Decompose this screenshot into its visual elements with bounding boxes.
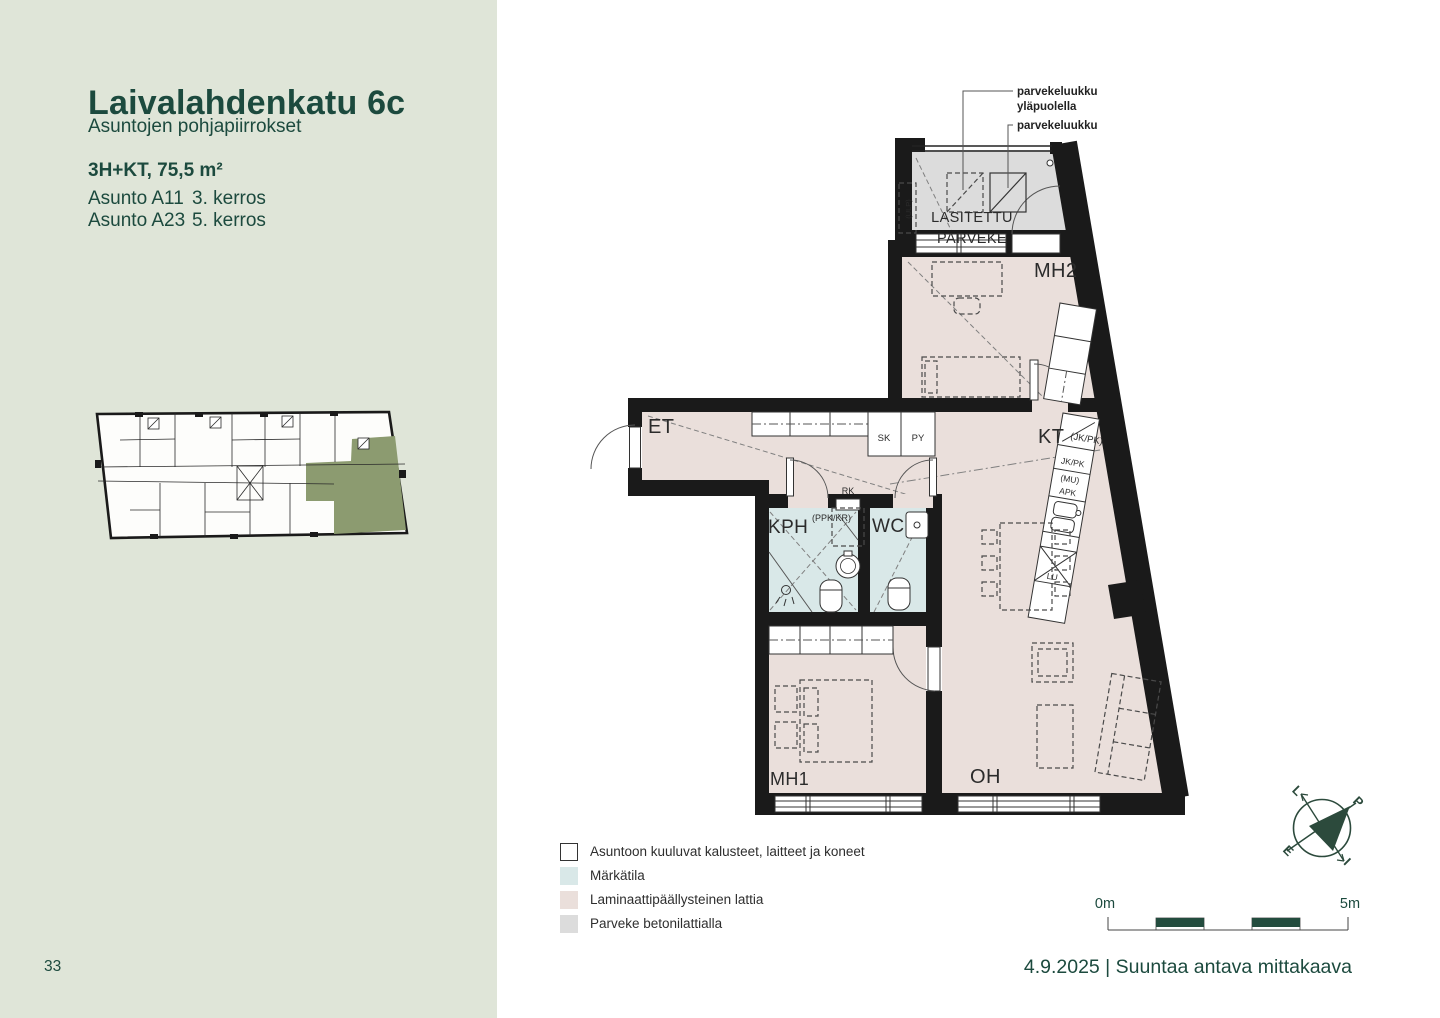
balcony-drain	[1047, 160, 1053, 166]
room-label-mh2: MH2	[1034, 260, 1077, 282]
room-label-mh1: MH1	[770, 769, 809, 789]
unit-row: Asunto A113. kerros	[88, 188, 266, 210]
laundry-label: (PPK/KR)	[812, 513, 851, 523]
legend-swatch-furniture	[560, 843, 578, 861]
page-subtitle: Asuntojen pohjapiirrokset	[88, 116, 301, 138]
room-label-kph: KPH	[768, 517, 808, 538]
annotation-hatch-above-1: parvekeluukku	[1017, 86, 1098, 98]
unit-name: Asunto A23	[88, 210, 192, 232]
brochure-page: { "page": { "page_number": "33", "footer…	[0, 0, 1440, 1018]
sidebar: Laivalahdenkatu 6c Asuntojen pohjapiirro…	[0, 0, 497, 1018]
scale-start-label: 0m	[1095, 896, 1115, 912]
legend-swatch-laminate	[560, 891, 578, 909]
page-number: 33	[44, 958, 61, 976]
room-label-kt: KT	[1038, 426, 1064, 448]
legend-label: Laminaattipäällysteinen lattia	[590, 892, 763, 907]
room-label-balcony-1: LASITETTU	[931, 210, 1013, 226]
legend-item: Parveke betonilattialla	[560, 914, 865, 933]
legend: Asuntoon kuuluvat kalusteet, laitteet ja…	[560, 842, 865, 933]
legend-label: Parveke betonilattialla	[590, 916, 722, 931]
closet-py-label: PY	[912, 433, 925, 444]
floor-plan: JK/PK (MU) APK LU	[570, 75, 1192, 820]
annotation-hatch-above-2: yläpuolella	[1017, 101, 1077, 113]
legend-label: Märkätila	[590, 868, 645, 883]
rk-label: RK	[842, 486, 855, 496]
room-label-oh: OH	[970, 766, 1001, 788]
room-label-wc: WC	[872, 516, 904, 537]
legend-item: Märkätila	[560, 866, 865, 885]
legend-item: Laminaattipäällysteinen lattia	[560, 890, 865, 909]
unit-floor: 3. kerros	[192, 188, 266, 209]
legend-item: Asuntoon kuuluvat kalusteet, laitteet ja…	[560, 842, 865, 861]
room-label-balcony-2: PARVEKE	[937, 231, 1007, 247]
footer-date-note: 4.9.2025 | Suuntaa antava mittakaava	[1024, 956, 1352, 979]
key-plan	[88, 400, 413, 542]
compass: L P E I	[1275, 775, 1385, 880]
scale-end-label: 5m	[1340, 896, 1360, 912]
annotation-hatch: parvekeluukku	[1017, 120, 1098, 132]
scale-bar: 0m 5m	[1080, 893, 1370, 943]
unit-name: Asunto A11	[88, 188, 192, 210]
unit-floor: 5. kerros	[192, 210, 266, 231]
legend-swatch-wet	[560, 867, 578, 885]
balcony-vent-label: (ULP)	[904, 199, 913, 219]
compass-needle	[1309, 806, 1350, 851]
legend-label: Asuntoon kuuluvat kalusteet, laitteet ja…	[590, 844, 865, 859]
legend-swatch-balcony	[560, 915, 578, 933]
compass-north-label: P	[1350, 793, 1367, 810]
closet-sk-label: SK	[878, 433, 891, 444]
room-label-et: ET	[648, 416, 674, 438]
apartment-type: 3H+KT, 75,5 m²	[88, 160, 223, 182]
compass-south-label: E	[1280, 842, 1297, 859]
unit-list: Asunto A113. kerros Asunto A235. kerros	[88, 188, 266, 231]
unit-row: Asunto A235. kerros	[88, 210, 266, 232]
